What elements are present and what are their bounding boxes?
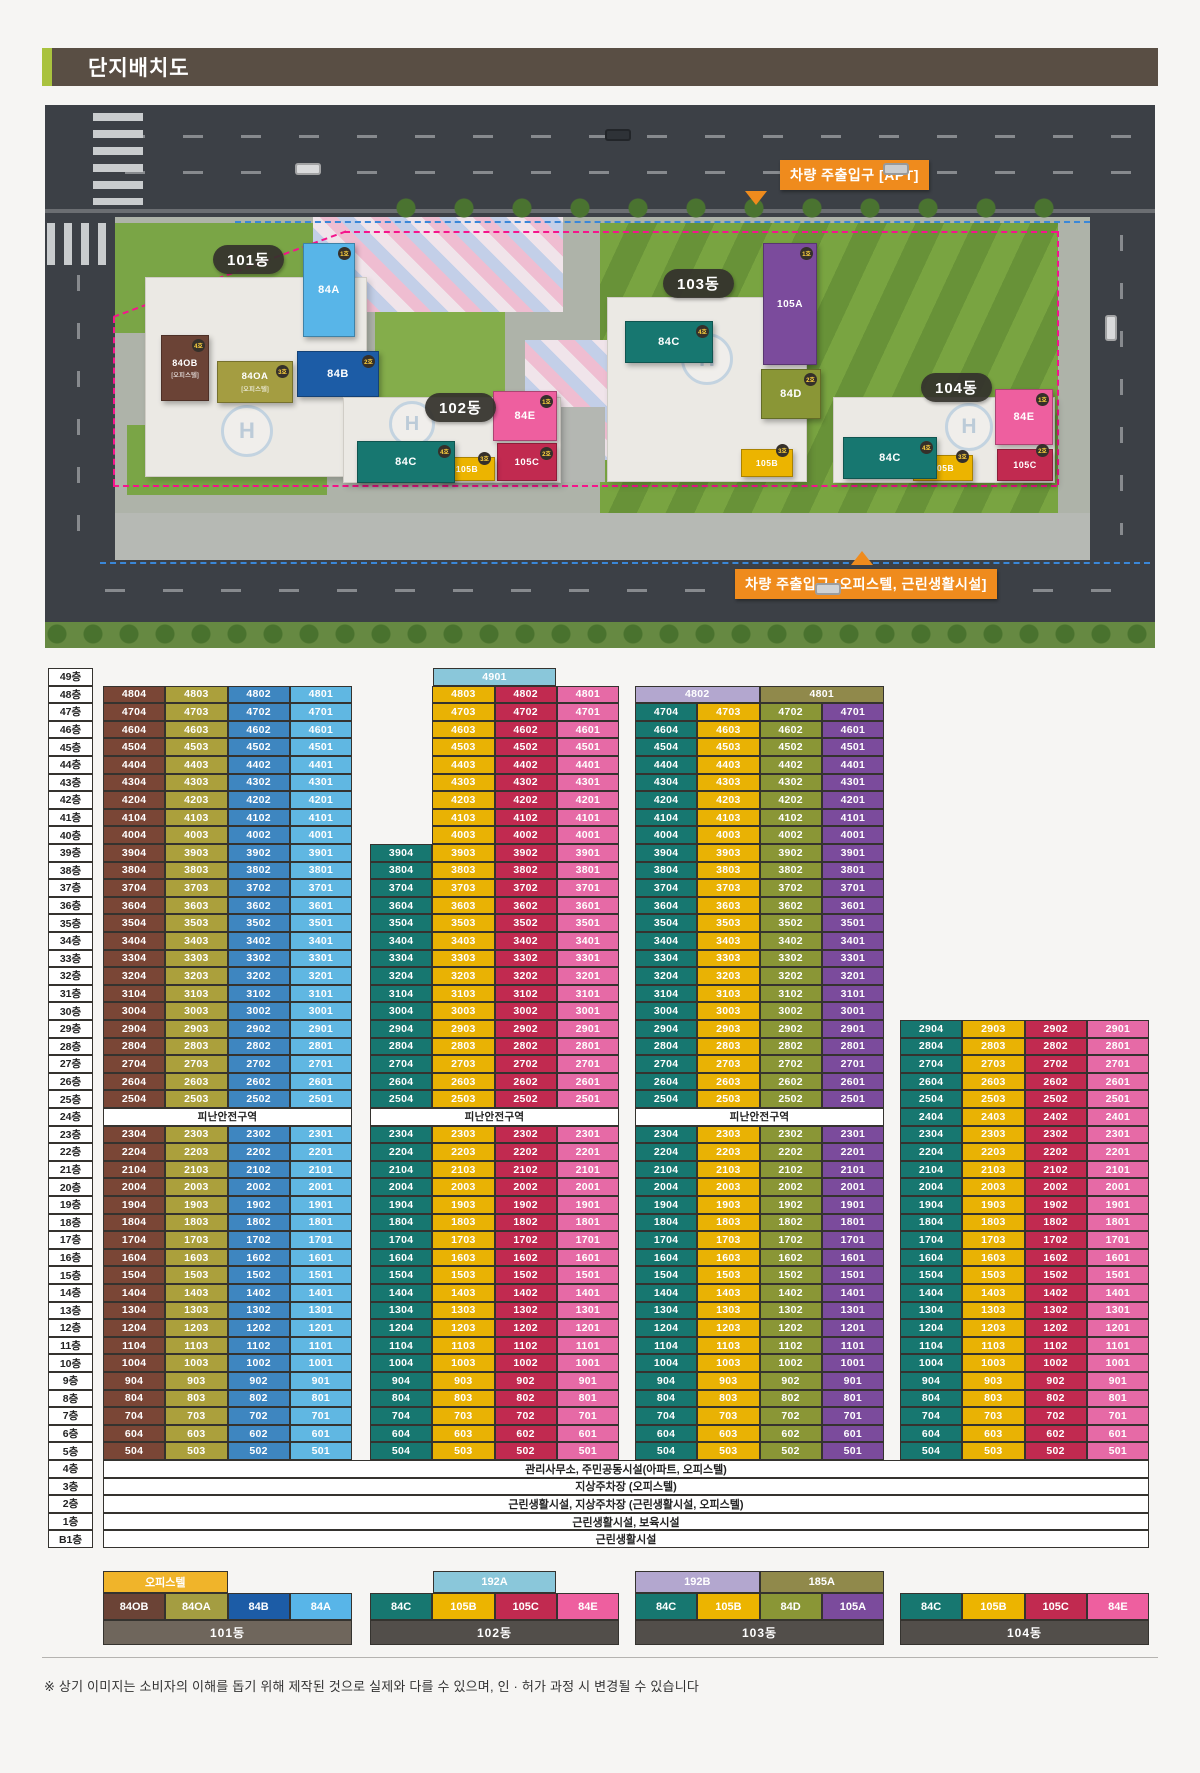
unit-cell: 1504	[635, 1266, 697, 1284]
unit-cell: 1704	[370, 1231, 432, 1249]
stack-group-102동: 704703702701	[370, 1407, 619, 1425]
stack-group-103동: 4104410341024101	[635, 809, 884, 827]
building-84e-104: 1호 84E	[995, 389, 1053, 445]
unit-cell: 3004	[635, 1002, 697, 1020]
unit-cell: 1401	[1087, 1284, 1149, 1302]
refuge-cell: 피난안전구역	[370, 1108, 619, 1126]
unit-cell: 3501	[290, 914, 352, 932]
page-title: 단지배치도	[88, 48, 190, 86]
unit-cell: 2104	[103, 1161, 165, 1179]
unit-cell: 1302	[228, 1302, 290, 1320]
unit-cell: 3401	[822, 932, 884, 950]
street-trees	[45, 622, 1155, 648]
unit-cell: 2802	[1025, 1038, 1087, 1056]
stack-row: 15층1504150315021501150415031502150115041…	[48, 1266, 1149, 1284]
unit-cell: 801	[822, 1390, 884, 1408]
legend-header-row: 192A	[370, 1571, 619, 1593]
unit-cell: 1202	[1025, 1319, 1087, 1337]
unit-cell: 3202	[495, 967, 557, 985]
unit-cell: 703	[697, 1407, 759, 1425]
stack-row: 16층1604160316021601160416031602160116041…	[48, 1249, 1149, 1267]
stack-row: 2층근린생활시설, 지상주차장 (근린생활시설, 오피스텔)	[48, 1495, 1149, 1513]
building-84oa: 3호 84OA [오피스텔]	[217, 361, 293, 403]
officetel-sublabel: [오피스텔]	[241, 383, 269, 393]
unit-cell: 1504	[103, 1266, 165, 1284]
stack-row: 30층3004300330023001300430033002300130043…	[48, 1002, 1149, 1020]
unit-cell: 1802	[760, 1214, 822, 1232]
unit-cell: 3301	[290, 950, 352, 968]
unit-cell: 2603	[962, 1073, 1024, 1091]
unit-cell: 2001	[290, 1178, 352, 1196]
unit-cell: 804	[103, 1390, 165, 1408]
unit-cell: 3501	[822, 914, 884, 932]
unit-cell: 501	[557, 1442, 619, 1460]
unit-cell: 3002	[228, 1002, 290, 1020]
unit-cell: 3804	[370, 862, 432, 880]
line-number-badge: 4호	[696, 325, 709, 338]
stack-group-101동: 3704370337023701	[103, 879, 352, 897]
unit-cell: 502	[1025, 1442, 1087, 1460]
unit-cell: 504	[635, 1442, 697, 1460]
legend-building-name: 101동	[103, 1620, 352, 1645]
floor-label: 11층	[48, 1337, 93, 1355]
floor-label: 33층	[48, 950, 93, 968]
unit-cell: 3303	[697, 950, 759, 968]
unit-span-cell: 4801	[760, 686, 885, 704]
floor-label: 14층	[48, 1284, 93, 1302]
stack-group-104동: 1304130313021301	[900, 1302, 1149, 1320]
stack-group-103동: 2504250325022501	[635, 1090, 884, 1108]
unit-cell: 3204	[635, 967, 697, 985]
unit-cell: 1701	[1087, 1231, 1149, 1249]
unit-cell: 3901	[290, 844, 352, 862]
unit-cell: 3903	[697, 844, 759, 862]
unit-cell: 904	[635, 1372, 697, 1390]
unit-cell: 1901	[557, 1196, 619, 1214]
stack-group-101동: 3904390339023901	[103, 844, 352, 862]
floor-label: 13층	[48, 1302, 93, 1320]
building-pill-102: 102동	[425, 393, 496, 422]
lane-marking	[77, 275, 80, 545]
stack-group-103동: 2604260326022601	[635, 1073, 884, 1091]
stack-group-103동: 804803802801	[635, 1390, 884, 1408]
stack-group-103동: 2704270327022701	[635, 1055, 884, 1073]
stack-row: 20층2004200320022001200420032002200120042…	[48, 1178, 1149, 1196]
stack-group-104동: 1404140314021401	[900, 1284, 1149, 1302]
unit-cell: 2504	[900, 1090, 962, 1108]
unit-cell: 3902	[495, 844, 557, 862]
unit-cell: 2202	[228, 1143, 290, 1161]
stack-row: 13층1304130313021301130413031302130113041…	[48, 1302, 1149, 1320]
unit-cell: 3401	[557, 932, 619, 950]
stack-group-102동: 3104310331023101	[370, 985, 619, 1003]
stack-group-103동: 3804380338023801	[635, 862, 884, 880]
unit-cell: 1304	[103, 1302, 165, 1320]
floor-label: 31층	[48, 985, 93, 1003]
unit-cell: 4503	[165, 738, 227, 756]
legend-building-name: 103동	[635, 1620, 884, 1645]
legend-unit-row: 84C105B84D105A	[635, 1593, 884, 1620]
unit-cell: 2004	[370, 1178, 432, 1196]
unit-cell: 3702	[495, 879, 557, 897]
stack-group-102동: 1404140314021401	[370, 1284, 619, 1302]
unit-cell: 2703	[165, 1055, 227, 1073]
stack-group-102동: 904903902901	[370, 1372, 619, 1390]
unit-cell: 1904	[900, 1196, 962, 1214]
unit-cell: 4104	[635, 809, 697, 827]
unit-cell: 904	[370, 1372, 432, 1390]
unit-cell: 2703	[697, 1055, 759, 1073]
unit-cell: 4603	[165, 721, 227, 739]
unit-cell: 4803	[165, 686, 227, 704]
unit-cell: 1802	[495, 1214, 557, 1232]
unit-cell: 4202	[495, 791, 557, 809]
stack-group-101동: 4204420342024201	[103, 791, 352, 809]
stack-row: 19층1904190319021901190419031902190119041…	[48, 1196, 1149, 1214]
unit-cell: 1402	[1025, 1284, 1087, 1302]
stack-group-103동: 2904290329022901	[635, 1020, 884, 1038]
stack-group-101동: 1404140314021401	[103, 1284, 352, 1302]
site-boundary-line	[113, 317, 115, 485]
unit-cell: 704	[103, 1407, 165, 1425]
unit-cell: 501	[822, 1442, 884, 1460]
stack-group-101동: 3804380338023801	[103, 862, 352, 880]
unit-cell: 1804	[635, 1214, 697, 1232]
unit-cell: 4701	[557, 703, 619, 721]
building-105b-103: 3호 105B	[741, 449, 793, 477]
unit-cell: 4303	[165, 774, 227, 792]
stack-group-102동: 1504150315021501	[370, 1266, 619, 1284]
floor-label: 49층	[48, 668, 93, 686]
unit-cell: 904	[103, 1372, 165, 1390]
stack-group-103동: 4204420342024201	[635, 791, 884, 809]
stack-group-102동: 1004100310021001	[370, 1354, 619, 1372]
unit-cell: 1003	[165, 1354, 227, 1372]
unit-cell: 801	[290, 1390, 352, 1408]
unit-cell: 2203	[697, 1143, 759, 1161]
lane-marking	[1120, 235, 1123, 535]
unit-cell: 2101	[822, 1161, 884, 1179]
stack-group-102동: 3704370337023701	[370, 879, 619, 897]
officetel-sublabel: [오피스텔]	[171, 369, 199, 379]
stack-group-102동: 2504250325022501	[370, 1090, 619, 1108]
unit-cell: 4103	[432, 809, 494, 827]
unit-cell: 4103	[697, 809, 759, 827]
building-pill-103: 103동	[663, 269, 734, 298]
unit-cell: 2903	[697, 1020, 759, 1038]
unit-cell: 3703	[697, 879, 759, 897]
unit-span-cell: 4802	[635, 686, 760, 704]
unit-cell: 604	[370, 1425, 432, 1443]
unit-cell: 1704	[900, 1231, 962, 1249]
divider-line	[42, 1657, 1158, 1658]
unit-cell: 1402	[495, 1284, 557, 1302]
unit-cell: 504	[370, 1442, 432, 1460]
unit-cell: 2704	[900, 1055, 962, 1073]
stack-group-104동: 1704170317021701	[900, 1231, 1149, 1249]
stack-group-102동: 3404340334023401	[370, 932, 619, 950]
unit-cell: 2802	[760, 1038, 822, 1056]
stack-row: 47층4704470347024701470347024701470447034…	[48, 703, 1149, 721]
unit-cell: 4403	[165, 756, 227, 774]
unit-cell: 1703	[697, 1231, 759, 1249]
unit-cell: 1101	[557, 1337, 619, 1355]
unit-cell: 601	[557, 1425, 619, 1443]
unit-cell: 1001	[290, 1354, 352, 1372]
stack-group-103동: 1904190319021901	[635, 1196, 884, 1214]
stack-row: 37층3704370337023701370437033702370137043…	[48, 879, 1149, 897]
unit-cell: 2202	[1025, 1143, 1087, 1161]
unit-cell: 3904	[635, 844, 697, 862]
building-105c-104: 2호 105C	[997, 449, 1053, 481]
unit-cell: 503	[165, 1442, 227, 1460]
stack-group-101동: 1904190319021901	[103, 1196, 352, 1214]
unit-cell: 3304	[635, 950, 697, 968]
unit-cell: 2504	[370, 1090, 432, 1108]
stack-row: 27층2704270327022701270427032702270127042…	[48, 1055, 1149, 1073]
unit-cell: 3904	[370, 844, 432, 862]
stack-group-103동: 4404440344024401	[635, 756, 884, 774]
building-84e-102: 1호 84E	[493, 391, 557, 441]
stack-group-103동: 1304130313021301	[635, 1302, 884, 1320]
unit-cell: 4704	[635, 703, 697, 721]
stack-group-101동: 4804480348024801	[103, 686, 352, 704]
line-number-badge: 2호	[1036, 444, 1049, 457]
unit-cell: 2802	[495, 1038, 557, 1056]
unit-cell: 3803	[432, 862, 494, 880]
unit-cell: 2103	[962, 1161, 1024, 1179]
stack-row: 41층4104410341024101410341024101410441034…	[48, 809, 1149, 827]
stack-group-103동: 3404340334023401	[635, 932, 884, 950]
unit-cell: 1804	[900, 1214, 962, 1232]
unit-cell: 2601	[822, 1073, 884, 1091]
unit-cell: 3503	[697, 914, 759, 932]
unit-cell: 704	[370, 1407, 432, 1425]
unit-cell: 2304	[900, 1126, 962, 1144]
stack-row: 44층4404440344024401440344024401440444034…	[48, 756, 1149, 774]
unit-cell: 1503	[432, 1266, 494, 1284]
stack-group-101동: 2704270327022701	[103, 1055, 352, 1073]
unit-cell: 702	[760, 1407, 822, 1425]
unit-cell: 802	[495, 1390, 557, 1408]
unit-cell: 1203	[697, 1319, 759, 1337]
unit-cell: 3303	[165, 950, 227, 968]
unit-cell: 1103	[697, 1337, 759, 1355]
stack-group-101동: 2304230323022301	[103, 1126, 352, 1144]
floor-label: 24층	[48, 1108, 93, 1126]
unit-cell: 4602	[495, 721, 557, 739]
unit-cell: 1302	[495, 1302, 557, 1320]
stack-row: 36층3604360336023601360436033602360136043…	[48, 897, 1149, 915]
unit-cell: 1604	[635, 1249, 697, 1267]
line-number-badge: 1호	[540, 395, 553, 408]
unit-cell: 1303	[432, 1302, 494, 1320]
stack-row: 9층90490390290190490390290190490390290190…	[48, 1372, 1149, 1390]
line-number-badge: 2호	[362, 355, 375, 368]
unit-cell: 1904	[103, 1196, 165, 1214]
unit-cell: 3203	[697, 967, 759, 985]
unit-cell: 1603	[962, 1249, 1024, 1267]
stack-group-102동: 1204120312021201	[370, 1319, 619, 1337]
unit-cell: 602	[1025, 1425, 1087, 1443]
unit-cell: 603	[697, 1425, 759, 1443]
unit-cell: 2901	[557, 1020, 619, 1038]
unit-cell: 1103	[962, 1337, 1024, 1355]
unit-cell: 2904	[370, 1020, 432, 1038]
unit-cell: 1501	[1087, 1266, 1149, 1284]
unit-cell: 601	[822, 1425, 884, 1443]
legend-header-row: 오피스텔	[103, 1571, 352, 1593]
stack-group-102동: 1104110311021101	[370, 1337, 619, 1355]
unit-cell: 3401	[290, 932, 352, 950]
floor-label: 43층	[48, 774, 93, 792]
unit-cell: 1904	[370, 1196, 432, 1214]
legend-unit-cell: 84E	[1087, 1593, 1149, 1620]
unit-cell: 1304	[370, 1302, 432, 1320]
unit-cell: 3504	[635, 914, 697, 932]
stack-group-101동: 3604360336023601	[103, 897, 352, 915]
unit-cell: 2002	[495, 1178, 557, 1196]
unit-cell: 2602	[760, 1073, 822, 1091]
unit-cell: 1204	[370, 1319, 432, 1337]
unit-cell: 1601	[1087, 1249, 1149, 1267]
unit-cell: 1303	[165, 1302, 227, 1320]
unit-cell: 1501	[290, 1266, 352, 1284]
unit-cell: 1102	[760, 1337, 822, 1355]
unit-cell: 1602	[760, 1249, 822, 1267]
unit-cell: 4002	[495, 826, 557, 844]
unit-cell: 4004	[635, 826, 697, 844]
unit-cell: 4103	[165, 809, 227, 827]
unit-cell: 1903	[697, 1196, 759, 1214]
unit-cell: 4201	[822, 791, 884, 809]
unit-cell: 3601	[557, 897, 619, 915]
stack-group-101동: 3304330333023301	[103, 950, 352, 968]
unit-cell: 3101	[290, 985, 352, 1003]
stack-group-101동: 804803802801	[103, 1390, 352, 1408]
stack-row: 21층2104210321022101210421032102210121042…	[48, 1161, 1149, 1179]
unit-cell: 2904	[900, 1020, 962, 1038]
unit-cell: 2603	[697, 1073, 759, 1091]
unit-cell: 3403	[697, 932, 759, 950]
stack-row: 6층60460360260160460360260160460360260160…	[48, 1425, 1149, 1443]
unit-stacking-table: 49층490148층480448034802480148034802480148…	[48, 668, 1149, 1548]
unit-cell: 4703	[432, 703, 494, 721]
unit-cell: 1702	[1025, 1231, 1087, 1249]
unit-cell: 3801	[290, 862, 352, 880]
unit-cell: 4702	[228, 703, 290, 721]
legend-type-header: 192B	[635, 1571, 760, 1593]
unit-cell: 601	[1087, 1425, 1149, 1443]
unit-cell: 2301	[557, 1126, 619, 1144]
floor-label: 46층	[48, 721, 93, 739]
stack-group-104동: 604603602601	[900, 1425, 1149, 1443]
site-boundary-line	[344, 231, 1057, 233]
unit-cell: 3103	[165, 985, 227, 1003]
unit-cell: 3301	[557, 950, 619, 968]
unit-cell: 1902	[760, 1196, 822, 1214]
legend-unit-cell: 84E	[557, 1593, 619, 1620]
unit-cell: 4404	[103, 756, 165, 774]
unit-cell: 4001	[557, 826, 619, 844]
unit-cell: 1204	[635, 1319, 697, 1337]
stack-group-104동: 1804180318021801	[900, 1214, 1149, 1232]
floor-label: B1층	[48, 1530, 93, 1548]
tree-row	[395, 197, 1085, 221]
unit-cell: 3302	[760, 950, 822, 968]
unit-cell: 502	[760, 1442, 822, 1460]
stack-group-102동: 2804280328022801	[370, 1038, 619, 1056]
unit-cell: 3204	[103, 967, 165, 985]
stack-group-101동: 4004400340024001	[103, 826, 352, 844]
unit-cell: 4403	[432, 756, 494, 774]
unit-cell: 1402	[228, 1284, 290, 1302]
unit-cell: 3302	[495, 950, 557, 968]
unit-cell: 2903	[165, 1020, 227, 1038]
stack-group-102동: 1904190319021901	[370, 1196, 619, 1214]
unit-cell: 3601	[822, 897, 884, 915]
stack-group-102동: 804803802801	[370, 1390, 619, 1408]
stack-row: 43층4304430343024301430343024301430443034…	[48, 774, 1149, 792]
unit-cell: 4603	[697, 721, 759, 739]
line-number-badge: 3호	[776, 444, 789, 457]
unit-cell: 501	[1087, 1442, 1149, 1460]
unit-cell: 3004	[103, 1002, 165, 1020]
stack-group-102동: 470347024701	[370, 703, 619, 721]
unit-cell: 2202	[760, 1143, 822, 1161]
car	[815, 583, 841, 595]
floor-label: 5층	[48, 1442, 93, 1460]
unit-cell: 4502	[228, 738, 290, 756]
unit-cell: 1401	[822, 1284, 884, 1302]
unit-cell: 2701	[290, 1055, 352, 1073]
unit-cell: 4703	[165, 703, 227, 721]
stack-group-101동: 604603602601	[103, 1425, 352, 1443]
unit-cell: 1203	[165, 1319, 227, 1337]
unit-cell: 1403	[432, 1284, 494, 1302]
stack-row: 48층480448034802480148034802480148024801	[48, 686, 1149, 704]
unit-cell: 1102	[495, 1337, 557, 1355]
unit-cell: 2303	[962, 1126, 1024, 1144]
unit-cell: 4703	[697, 703, 759, 721]
unit-cell: 902	[495, 1372, 557, 1390]
unit-cell: 3402	[760, 932, 822, 950]
legend-building-name: 102동	[370, 1620, 619, 1645]
unit-cell: 4201	[557, 791, 619, 809]
stack-group-104동: 2804280328022801	[900, 1038, 1149, 1056]
unit-cell: 1703	[962, 1231, 1024, 1249]
stack-group-104동: 2104210321022101	[900, 1161, 1149, 1179]
unit-cell: 1002	[760, 1354, 822, 1372]
stack-group-101동: 1304130313021301	[103, 1302, 352, 1320]
unit-cell: 2201	[1087, 1143, 1149, 1161]
unit-cell: 2803	[432, 1038, 494, 1056]
line-number-badge: 4호	[920, 441, 933, 454]
stack-group-102동: 1804180318021801	[370, 1214, 619, 1232]
unit-cell: 4102	[495, 809, 557, 827]
floor-label: 47층	[48, 703, 93, 721]
unit-cell: 2903	[962, 1020, 1024, 1038]
stack-row: 4층관리사무소, 주민공동시설(아파트, 오피스텔)	[48, 1460, 1149, 1478]
unit-cell: 2702	[228, 1055, 290, 1073]
unit-cell: 4201	[290, 791, 352, 809]
unit-cell: 4302	[760, 774, 822, 792]
unit-cell: 4804	[103, 686, 165, 704]
stack-group-103동: 1504150315021501	[635, 1266, 884, 1284]
unit-cell: 2801	[290, 1038, 352, 1056]
unit-cell: 3201	[290, 967, 352, 985]
stack-group-103동: 1804180318021801	[635, 1214, 884, 1232]
